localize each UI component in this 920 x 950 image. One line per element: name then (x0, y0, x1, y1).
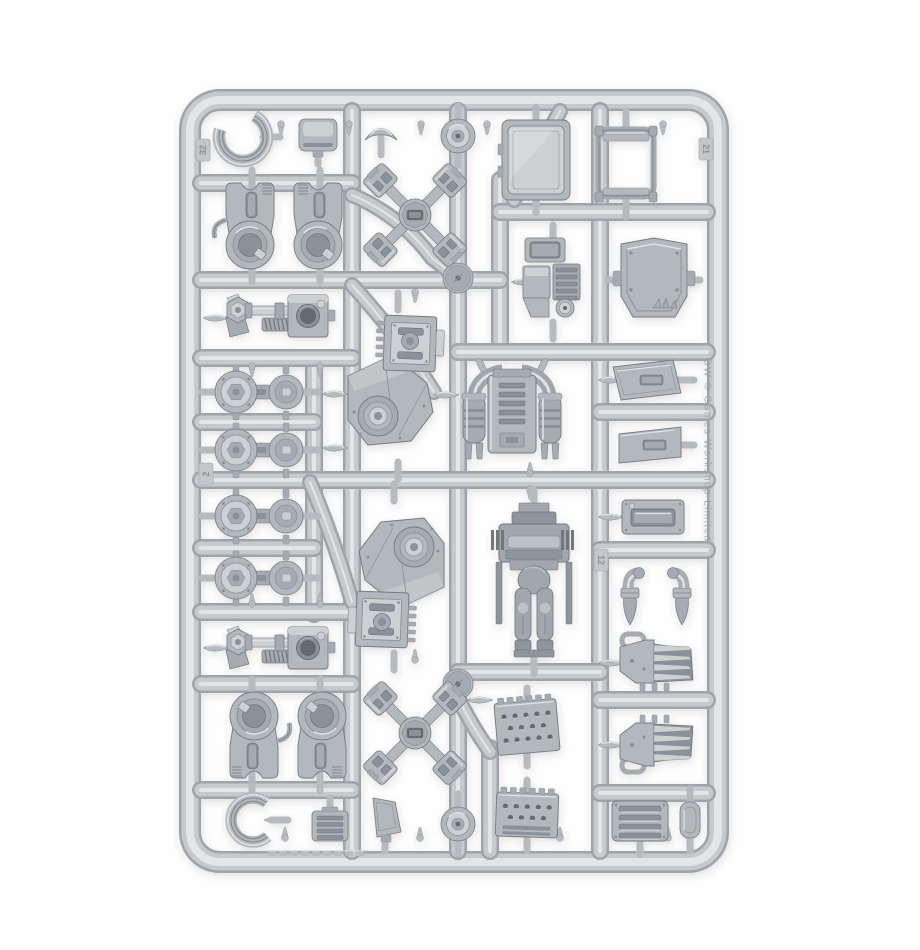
sprue-frame: 3221122GW © Games Workshop Limited (190, 99, 718, 862)
part-body (613, 360, 681, 400)
number-tab: 32 (196, 139, 210, 161)
part-body (493, 693, 560, 755)
number-tab-label: 32 (198, 145, 208, 155)
product-photo: 3221122GW © Games Workshop Limited (0, 0, 920, 950)
part-body (495, 787, 559, 838)
number-tab-label: 21 (701, 144, 711, 154)
part-body (612, 801, 668, 841)
part-body (441, 807, 475, 841)
part-armour-hatch-door (498, 107, 570, 213)
number-tab-label: 2 (201, 471, 211, 476)
number-tab: 21 (699, 138, 713, 160)
part-body (298, 692, 346, 778)
number-tab-label: 12 (596, 555, 606, 565)
part-body (299, 119, 337, 157)
sprue-photo: 3221122GW © Games Workshop Limited (0, 0, 920, 950)
leg-upper-box (347, 591, 417, 648)
part-body (680, 802, 700, 838)
maker-text: GW © Games Workshop Limited (702, 358, 714, 543)
part-body (622, 500, 684, 534)
number-tab: 12 (594, 549, 608, 571)
leg-upper-box (375, 315, 445, 372)
part-body (498, 120, 570, 200)
number-tab: 2 (199, 463, 213, 485)
part-body (312, 807, 348, 841)
embossed-maker-text: GW © Games Workshop Limited (702, 358, 714, 543)
part-body (441, 119, 475, 153)
part-small-hatch-plate (622, 500, 684, 534)
part-body (294, 183, 342, 269)
